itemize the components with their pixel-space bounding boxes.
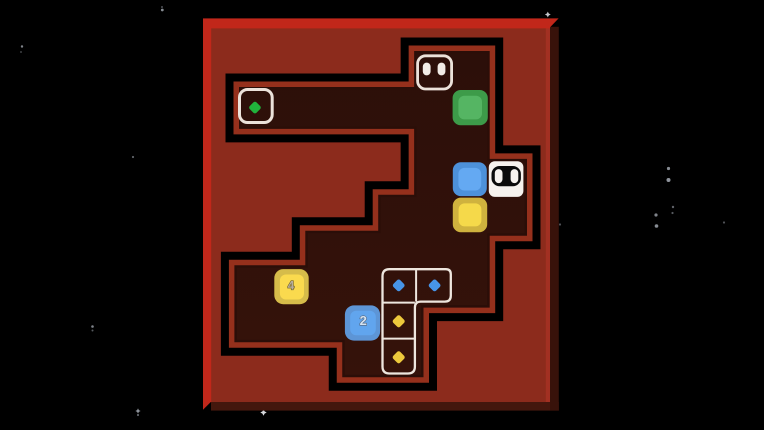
svg-text:2: 2 (360, 313, 367, 328)
svg-text:4: 4 (288, 281, 295, 293)
